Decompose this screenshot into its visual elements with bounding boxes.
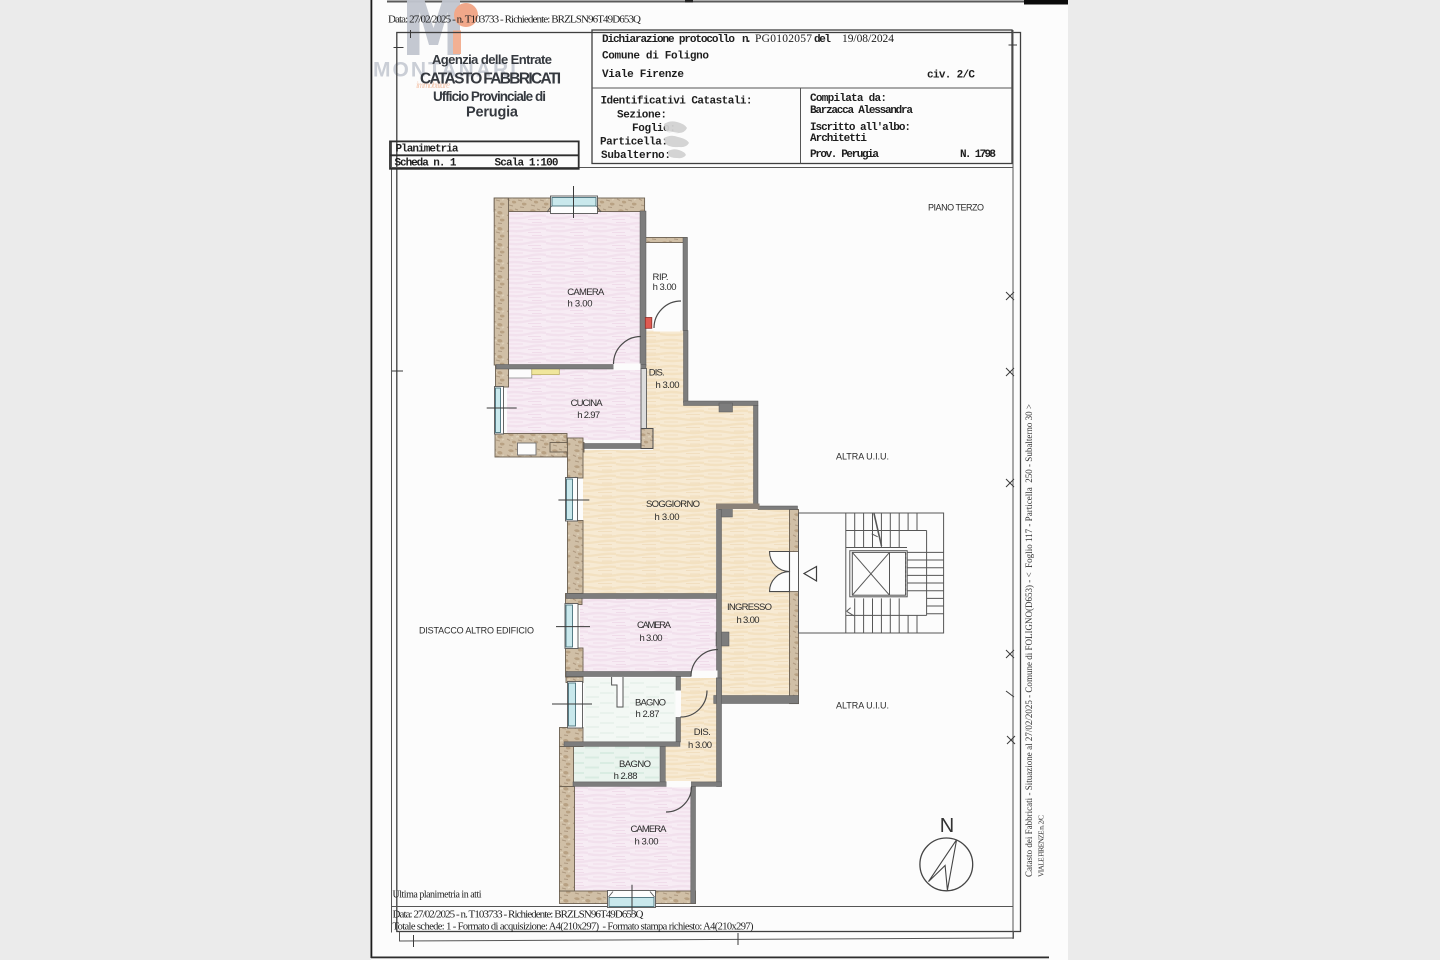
svg-text:Architetti: Architetti xyxy=(810,133,867,145)
svg-text:Agenzia delle Entrate: Agenzia delle Entrate xyxy=(432,52,552,67)
svg-text:Identificativi Catastali:: Identificativi Catastali: xyxy=(601,96,753,108)
svg-text:DISTACCO ALTRO EDIFICIO: DISTACCO ALTRO EDIFICIO xyxy=(419,626,534,636)
svg-text:h 3.00: h 3.00 xyxy=(737,615,760,626)
svg-text:Sezione:: Sezione: xyxy=(617,110,667,122)
svg-text:ALTRA U.I.U.: ALTRA U.I.U. xyxy=(836,452,889,462)
svg-text:Totale schede: 1 - Formato di: Totale schede: 1 - Formato di acquisizio… xyxy=(393,922,755,933)
svg-text:CATASTO FABBRICATI: CATASTO FABBRICATI xyxy=(420,71,561,88)
svg-text:h 3.00: h 3.00 xyxy=(688,740,712,751)
svg-text:Data: 27/02/2025 - n. T103733: Data: 27/02/2025 - n. T103733 - Richiede… xyxy=(393,909,644,921)
svg-text:Scala 1:100: Scala 1:100 xyxy=(495,158,559,170)
svg-text:h 2.87: h 2.87 xyxy=(636,709,660,720)
svg-text:Ufficio Provinciale di: Ufficio Provinciale di xyxy=(433,89,546,104)
svg-text:Planimetria: Planimetria xyxy=(396,144,459,156)
svg-text:Viale Firenze: Viale Firenze xyxy=(602,69,684,81)
svg-text:CUCINA: CUCINA xyxy=(571,398,604,409)
svg-text:Prov. Perugia: Prov. Perugia xyxy=(810,149,879,161)
svg-text:Comune di Foligno: Comune di Foligno xyxy=(602,51,709,63)
svg-text:h 3.00: h 3.00 xyxy=(655,512,680,523)
svg-text:Particella:: Particella: xyxy=(600,137,668,149)
svg-text:ALTRA U.I.U.: ALTRA U.I.U. xyxy=(836,701,889,711)
svg-text:CAMERA: CAMERA xyxy=(567,287,605,298)
svg-text:INGRESSO: INGRESSO xyxy=(727,602,772,613)
svg-text:del: del xyxy=(814,34,831,46)
svg-text:Compilata da:: Compilata da: xyxy=(810,93,887,105)
svg-text:Subalterno:: Subalterno: xyxy=(601,150,671,162)
svg-text:PIANO TERZO: PIANO TERZO xyxy=(928,203,984,213)
svg-text:h 2.97: h 2.97 xyxy=(577,410,600,421)
svg-text:N: N xyxy=(940,815,954,837)
svg-text:h 3.00: h 3.00 xyxy=(635,837,659,848)
svg-text:h 2.88: h 2.88 xyxy=(614,771,638,782)
svg-text:SOGGIORNO: SOGGIORNO xyxy=(646,499,700,510)
svg-text:CAMERA: CAMERA xyxy=(637,620,672,631)
svg-text:DIS.: DIS. xyxy=(649,368,665,379)
svg-text:BAGNO: BAGNO xyxy=(635,698,666,709)
svg-text:BAGNO: BAGNO xyxy=(619,759,651,770)
svg-text:DIS.: DIS. xyxy=(694,727,711,738)
svg-text:h 3.00: h 3.00 xyxy=(640,633,663,644)
svg-text:19/08/2024: 19/08/2024 xyxy=(842,33,894,45)
svg-text:h 3.00: h 3.00 xyxy=(656,380,680,391)
svg-text:Catasto dei Fabbricati - Situa: Catasto dei Fabbricati - Situazione al 2… xyxy=(1024,404,1034,877)
svg-text:h 3.00: h 3.00 xyxy=(653,282,677,293)
svg-text:n.: n. xyxy=(742,34,752,46)
svg-text:h 3.00: h 3.00 xyxy=(568,299,593,310)
svg-text:VIALE FIRENZE n. 2/C: VIALE FIRENZE n. 2/C xyxy=(1037,815,1046,877)
svg-text:Ultima planimetria in atti: Ultima planimetria in atti xyxy=(393,890,482,901)
svg-text:Scheda n. 1: Scheda n. 1 xyxy=(395,158,457,170)
svg-text:CAMERA: CAMERA xyxy=(631,824,668,835)
svg-text:PG0102057: PG0102057 xyxy=(755,33,812,45)
svg-text:N. 1798: N. 1798 xyxy=(960,149,996,161)
svg-text:civ. 2/C: civ. 2/C xyxy=(927,70,975,82)
svg-text:Perugia: Perugia xyxy=(466,105,519,121)
svg-text:Barzacca Alessandra: Barzacca Alessandra xyxy=(810,105,913,117)
svg-text:Data: 27/02/2025 - n. T103733: Data: 27/02/2025 - n. T103733 - Richiede… xyxy=(388,14,641,26)
svg-text:Dichiarazione protocollo: Dichiarazione protocollo xyxy=(602,34,735,46)
